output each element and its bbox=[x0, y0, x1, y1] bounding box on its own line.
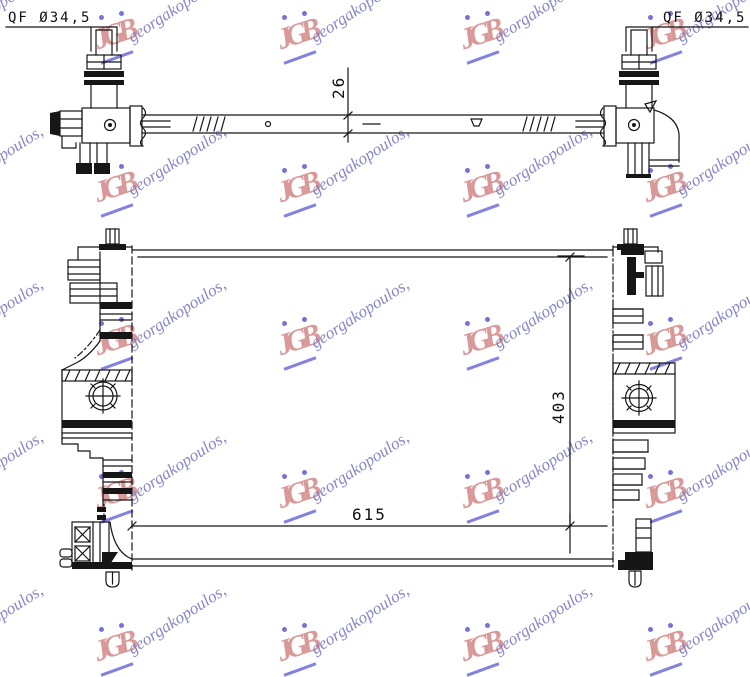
crossbar-hole bbox=[266, 122, 271, 127]
right-fitting bbox=[601, 30, 680, 178]
front-view: 615 403 bbox=[60, 229, 675, 587]
left-tank bbox=[60, 229, 132, 587]
mount-pin-top-left bbox=[106, 229, 119, 244]
hose-stub bbox=[628, 143, 649, 174]
drain-nozzle bbox=[60, 559, 72, 567]
dim-fitting-left-label: QF Ø34,5 bbox=[8, 10, 91, 26]
tank-rib bbox=[613, 490, 639, 500]
bottom-bracket-right bbox=[636, 519, 651, 552]
collar-ring bbox=[619, 71, 659, 77]
dim-core-width-label: 615 bbox=[352, 505, 387, 524]
bracket-ear bbox=[68, 260, 100, 280]
mount-foot bbox=[76, 163, 92, 174]
hose-stub-left bbox=[70, 283, 117, 303]
right-tank bbox=[613, 229, 675, 587]
weld-hatch-left bbox=[193, 117, 225, 131]
dim-fitting-right-label: QF Ø34,5 bbox=[663, 10, 746, 26]
dim-core-height-label: 403 bbox=[549, 389, 568, 424]
dim-crossbar-depth-label: 26 bbox=[329, 76, 348, 99]
crossbar-tab bbox=[471, 119, 482, 126]
dim-core-width: 615 bbox=[128, 505, 607, 553]
collar-ring bbox=[84, 71, 124, 77]
radiator-technical-drawing: QF Ø34,5 bbox=[0, 0, 750, 621]
radiator-technical-drawing-page: { "dimensions": { "fitting_left": "QF Ø3… bbox=[0, 0, 750, 621]
clip-bracket bbox=[621, 248, 644, 255]
crossbar bbox=[142, 115, 604, 133]
tank-rib bbox=[613, 440, 648, 452]
weld-hatch-right bbox=[523, 117, 555, 131]
clip bbox=[97, 515, 106, 520]
mount-pin-top-right bbox=[624, 229, 637, 244]
dim-core-height: 403 bbox=[549, 253, 584, 526]
dim-crossbar-depth: 26 bbox=[329, 68, 352, 142]
drain-nozzle bbox=[60, 549, 72, 557]
mount-foot bbox=[94, 163, 110, 174]
tank-rib bbox=[613, 474, 642, 485]
hose-nozzle bbox=[60, 111, 82, 136]
left-fitting bbox=[50, 30, 146, 174]
fitting-housing bbox=[82, 108, 130, 143]
clip bbox=[97, 507, 106, 512]
tank-rib bbox=[613, 458, 645, 469]
elbow-duct bbox=[654, 110, 679, 162]
top-view: QF Ø34,5 bbox=[6, 10, 748, 178]
